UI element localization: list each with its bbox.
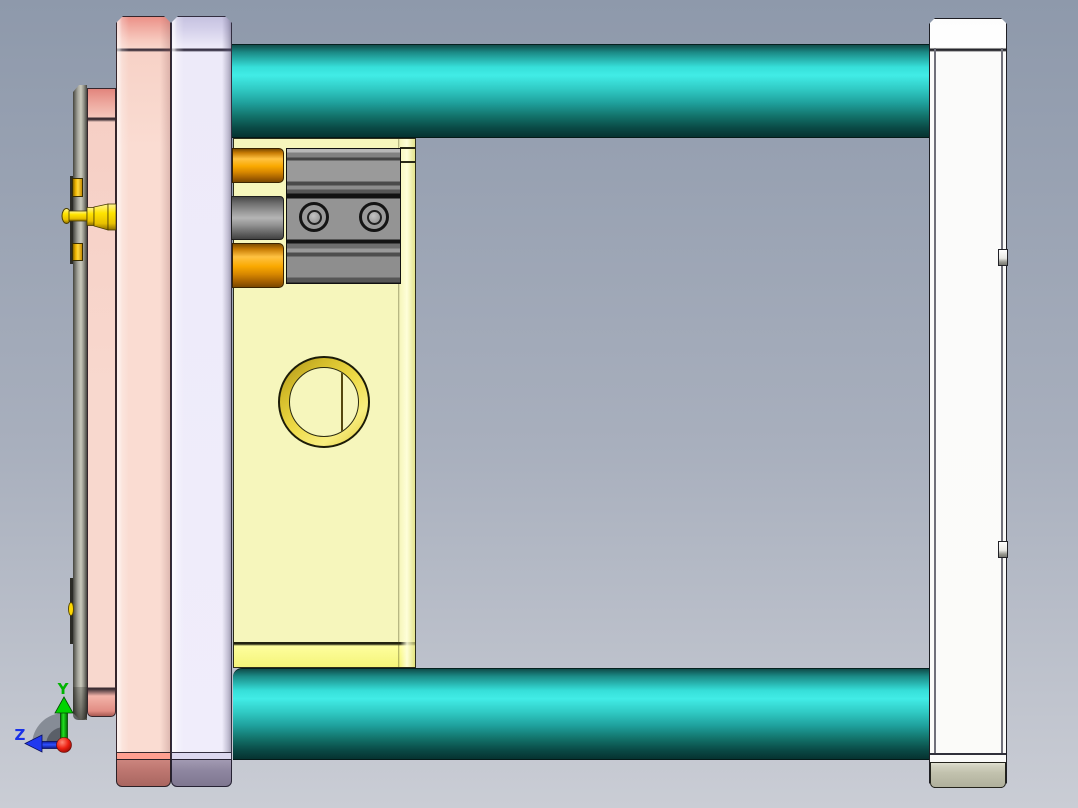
sprue-shaft — [69, 211, 87, 221]
yellow-retainer-bottom[interactable] — [72, 243, 83, 261]
orange-bushing-top[interactable] — [232, 148, 284, 183]
y-axis-label: Y — [57, 680, 70, 698]
lavender-plate-base-block[interactable] — [171, 759, 232, 787]
sprue-cone — [94, 204, 108, 230]
axis-triad[interactable]: Y Z — [8, 680, 110, 772]
cad-viewport[interactable]: Y Z — [0, 0, 1078, 808]
white-side-plate[interactable] — [929, 18, 1007, 788]
plate-notch-upper — [998, 249, 1008, 266]
ring-parting-line — [341, 373, 343, 434]
yellow-pin-end[interactable] — [68, 602, 74, 616]
khaki-foot-block[interactable] — [930, 762, 1006, 788]
yellow-plate-step-line-lower — [400, 161, 416, 163]
screw-center-left — [307, 210, 322, 225]
locating-ring[interactable] — [278, 356, 370, 448]
origin-ball — [57, 738, 72, 753]
lavender-support-plate[interactable] — [171, 16, 232, 753]
z-axis-label: Z — [15, 726, 26, 744]
sprue-barrel — [108, 204, 116, 230]
plate-notch-lower — [998, 541, 1008, 558]
pink-clamp-plate[interactable] — [116, 16, 171, 753]
white-plate-bottom-line — [930, 753, 1006, 755]
white-plate-inner-line-right — [1001, 48, 1003, 753]
guide-pillar-bottom[interactable] — [233, 668, 929, 760]
linear-guide-block[interactable] — [286, 148, 401, 284]
locating-ring-bore — [289, 367, 359, 437]
guide-pillar-top[interactable] — [232, 44, 929, 138]
sprue-collar — [87, 208, 94, 226]
orange-bushing-bottom[interactable] — [232, 243, 284, 288]
gray-core-cylinder[interactable] — [231, 196, 284, 240]
yellow-plate-step-line-upper — [400, 147, 416, 149]
yellow-retainer-top[interactable] — [72, 178, 83, 197]
screw-head-left[interactable] — [299, 202, 329, 232]
small-pink-plate[interactable] — [87, 88, 116, 717]
screw-center-right — [367, 210, 382, 225]
pink-plate-base-block[interactable] — [116, 759, 171, 787]
sprue-bushing[interactable] — [58, 200, 118, 234]
screw-head-right[interactable] — [359, 202, 389, 232]
y-axis-arrowhead — [55, 697, 73, 713]
white-plate-inner-line-left — [934, 48, 936, 753]
